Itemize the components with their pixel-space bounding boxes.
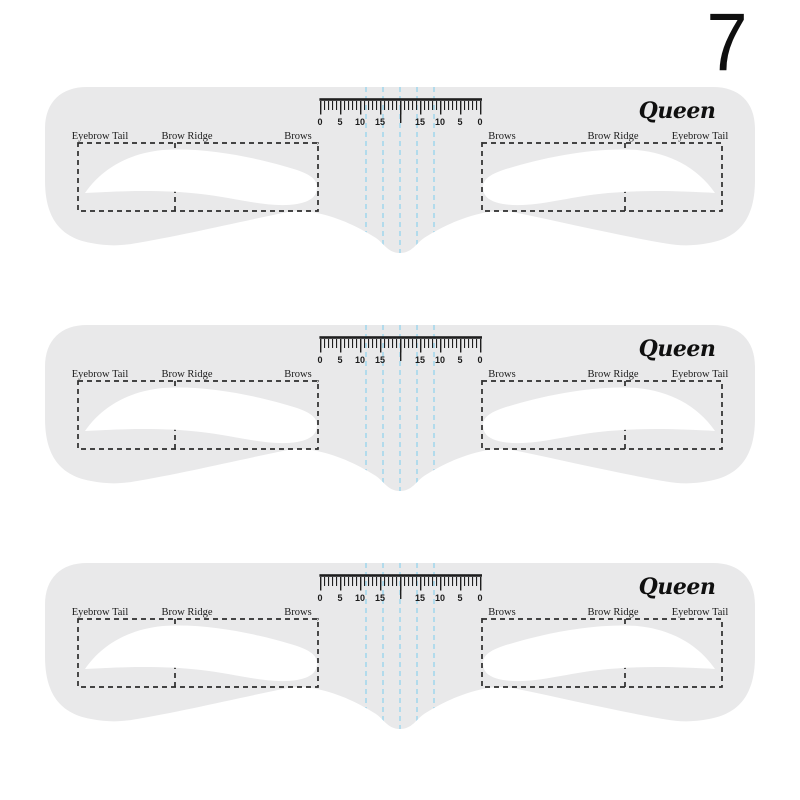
- stencil-2: [45, 325, 755, 493]
- variant-number: 7: [707, 2, 748, 84]
- product-photo: 7: [0, 0, 800, 800]
- stencil-1: [45, 87, 755, 255]
- stencil-3: [45, 563, 755, 731]
